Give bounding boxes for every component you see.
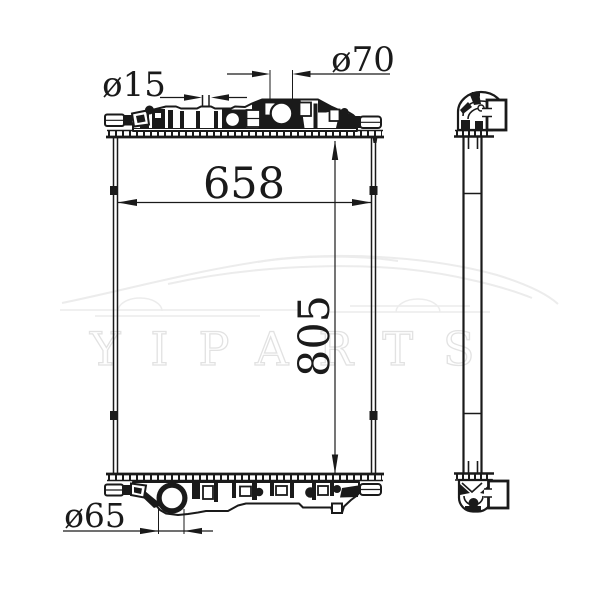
radiator-drawing: YIPARTS: [0, 0, 600, 600]
bottom-foot-tab: [332, 504, 342, 514]
technical-drawing-page: YIPARTS: [0, 0, 600, 600]
dimension-label-core-height: 805: [290, 295, 340, 377]
filler-neck-circle: [271, 103, 293, 125]
outlet-boss: [157, 483, 188, 514]
dimension-label-outlet: ø65: [64, 496, 126, 535]
dimension-label-filler-neck: ø70: [331, 40, 395, 80]
top-right-connector: [354, 116, 381, 128]
side-top-bracket: [482, 100, 506, 130]
bottom-right-connector: [360, 484, 381, 495]
side-bottom-bracket: [484, 481, 508, 508]
top-tank-port-circle: [225, 112, 240, 127]
dimension-label-inlet-pipe: ø15: [102, 65, 166, 105]
dimension-label-core-width: 658: [203, 159, 285, 209]
